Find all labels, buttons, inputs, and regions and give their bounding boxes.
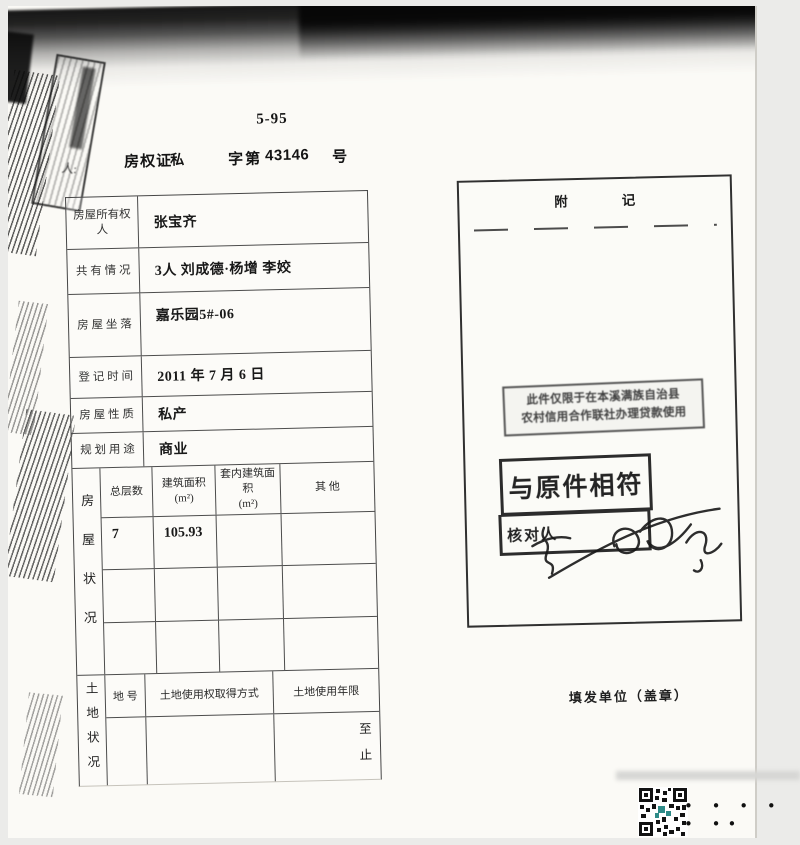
row-value: 3人 刘成德·杨增 李姣: [139, 243, 369, 292]
form-code: 5-95: [256, 111, 288, 129]
land-side-label: 土地状况: [77, 675, 108, 786]
loan-restriction-stamp: 此件仅限于在本溪满族自治县 农村信用合作联社办理贷款使用: [502, 378, 705, 436]
building-data-row: [104, 617, 378, 675]
cell-other: [282, 512, 376, 566]
row-value: 2011 年 7 月 6 日: [142, 351, 372, 396]
term-to: 止: [359, 744, 372, 763]
land-body-row: 至 止: [106, 712, 381, 785]
remarks-title: 附 记: [459, 186, 730, 212]
row-value: 商业: [144, 427, 374, 466]
row-label: 共 有 情 况: [67, 248, 140, 294]
scan-streak: [616, 771, 800, 780]
cell: [284, 617, 378, 671]
col-header: 土地使用权取得方式: [145, 671, 274, 716]
scan-artifact: [69, 66, 96, 149]
term-from: 至: [359, 718, 372, 737]
page-content: 人: 5-95 房权证 私 字第 43146 号 房屋所有权人 张宝齐 共 有 …: [8, 6, 757, 838]
col-header: 总层数: [100, 467, 153, 517]
col-header: 建筑面积 (m²): [152, 466, 216, 516]
row-label: 规 划 用 途: [72, 432, 145, 468]
cell: [155, 568, 219, 621]
scan-artifact: [19, 692, 63, 797]
title-doc-type: 房权证: [124, 150, 172, 172]
building-data-row: [103, 564, 377, 623]
punch-dots: • • • • • ••: [684, 797, 800, 833]
document-page: 人: 5-95 房权证 私 字第 43146 号 房屋所有权人 张宝齐 共 有 …: [8, 6, 757, 838]
col-header: 其 他: [280, 462, 374, 513]
col-header: 地 号: [105, 674, 146, 717]
building-header-row: 总层数 建筑面积 (m²) 套内建筑面积 (m²) 其 他: [100, 462, 374, 518]
cell-total-floors: 7: [102, 517, 155, 570]
building-grid: 总层数 建筑面积 (m²) 套内建筑面积 (m²) 其 他 7 105.93: [100, 462, 378, 674]
cell: [104, 622, 157, 675]
cell-land-number: [106, 717, 148, 785]
land-grid: 地 号 土地使用权取得方式 土地使用年限 至 止: [105, 669, 381, 785]
signature-handwriting: [513, 482, 730, 591]
cell: [218, 566, 284, 619]
title-series-label: 字第: [228, 147, 263, 169]
title-serial-number: 43146: [265, 146, 310, 164]
table-row: 房屋所有权人 张宝齐: [66, 191, 368, 250]
table-row: 房 屋 坐 落 嘉乐园5#-06: [68, 288, 370, 358]
building-data-row: 7 105.93: [102, 512, 376, 571]
cell-acquire-method: [146, 714, 276, 784]
row-label: 登 记 时 间: [70, 356, 143, 398]
row-label: 房屋所有权人: [66, 196, 139, 249]
cell-use-term: 至 止: [274, 712, 381, 781]
table-row: 登 记 时 间 2011 年 7 月 6 日: [70, 351, 372, 399]
cell: [103, 569, 156, 622]
cell: [156, 620, 220, 673]
row-label: 房 屋 坐 落: [68, 293, 141, 357]
row-value: 张宝齐: [138, 191, 368, 247]
land-header-row: 地 号 土地使用权取得方式 土地使用年限: [105, 669, 379, 718]
cell: [219, 619, 285, 672]
row-value: 私产: [143, 392, 373, 431]
building-condition-section: 房屋状况 总层数 建筑面积 (m²) 套内建筑面积 (m²) 其 他 7 105…: [72, 462, 378, 676]
land-condition-section: 土地状况 地 号 土地使用权取得方式 土地使用年限 至 止: [77, 669, 381, 786]
qr-code-icon: [638, 787, 688, 837]
col-header: 土地使用年限: [273, 669, 379, 713]
row-label: 房 屋 性 质: [71, 397, 144, 433]
certificate-table: 房屋所有权人 张宝齐 共 有 情 况 3人 刘成德·杨增 李姣 房 屋 坐 落 …: [65, 190, 382, 787]
remarks-title-underline: [474, 224, 717, 232]
title-category: 私: [170, 149, 184, 169]
cell-building-area: 105.93: [154, 516, 218, 569]
table-row: 共 有 情 况 3人 刘成德·杨增 李姣: [67, 243, 369, 295]
row-value: 嘉乐园5#-06: [140, 288, 370, 355]
col-header: 套内建筑面积 (m²): [215, 464, 281, 515]
scan-artifact: [8, 409, 76, 582]
issuer-label: 填发单位（盖章）: [569, 685, 689, 707]
cell-inner-area: [217, 514, 283, 567]
scanned-property-certificate: { "page": { "code_number": "5-95", "titl…: [0, 0, 800, 845]
title-suffix: 号: [332, 145, 348, 166]
cell: [283, 564, 377, 618]
